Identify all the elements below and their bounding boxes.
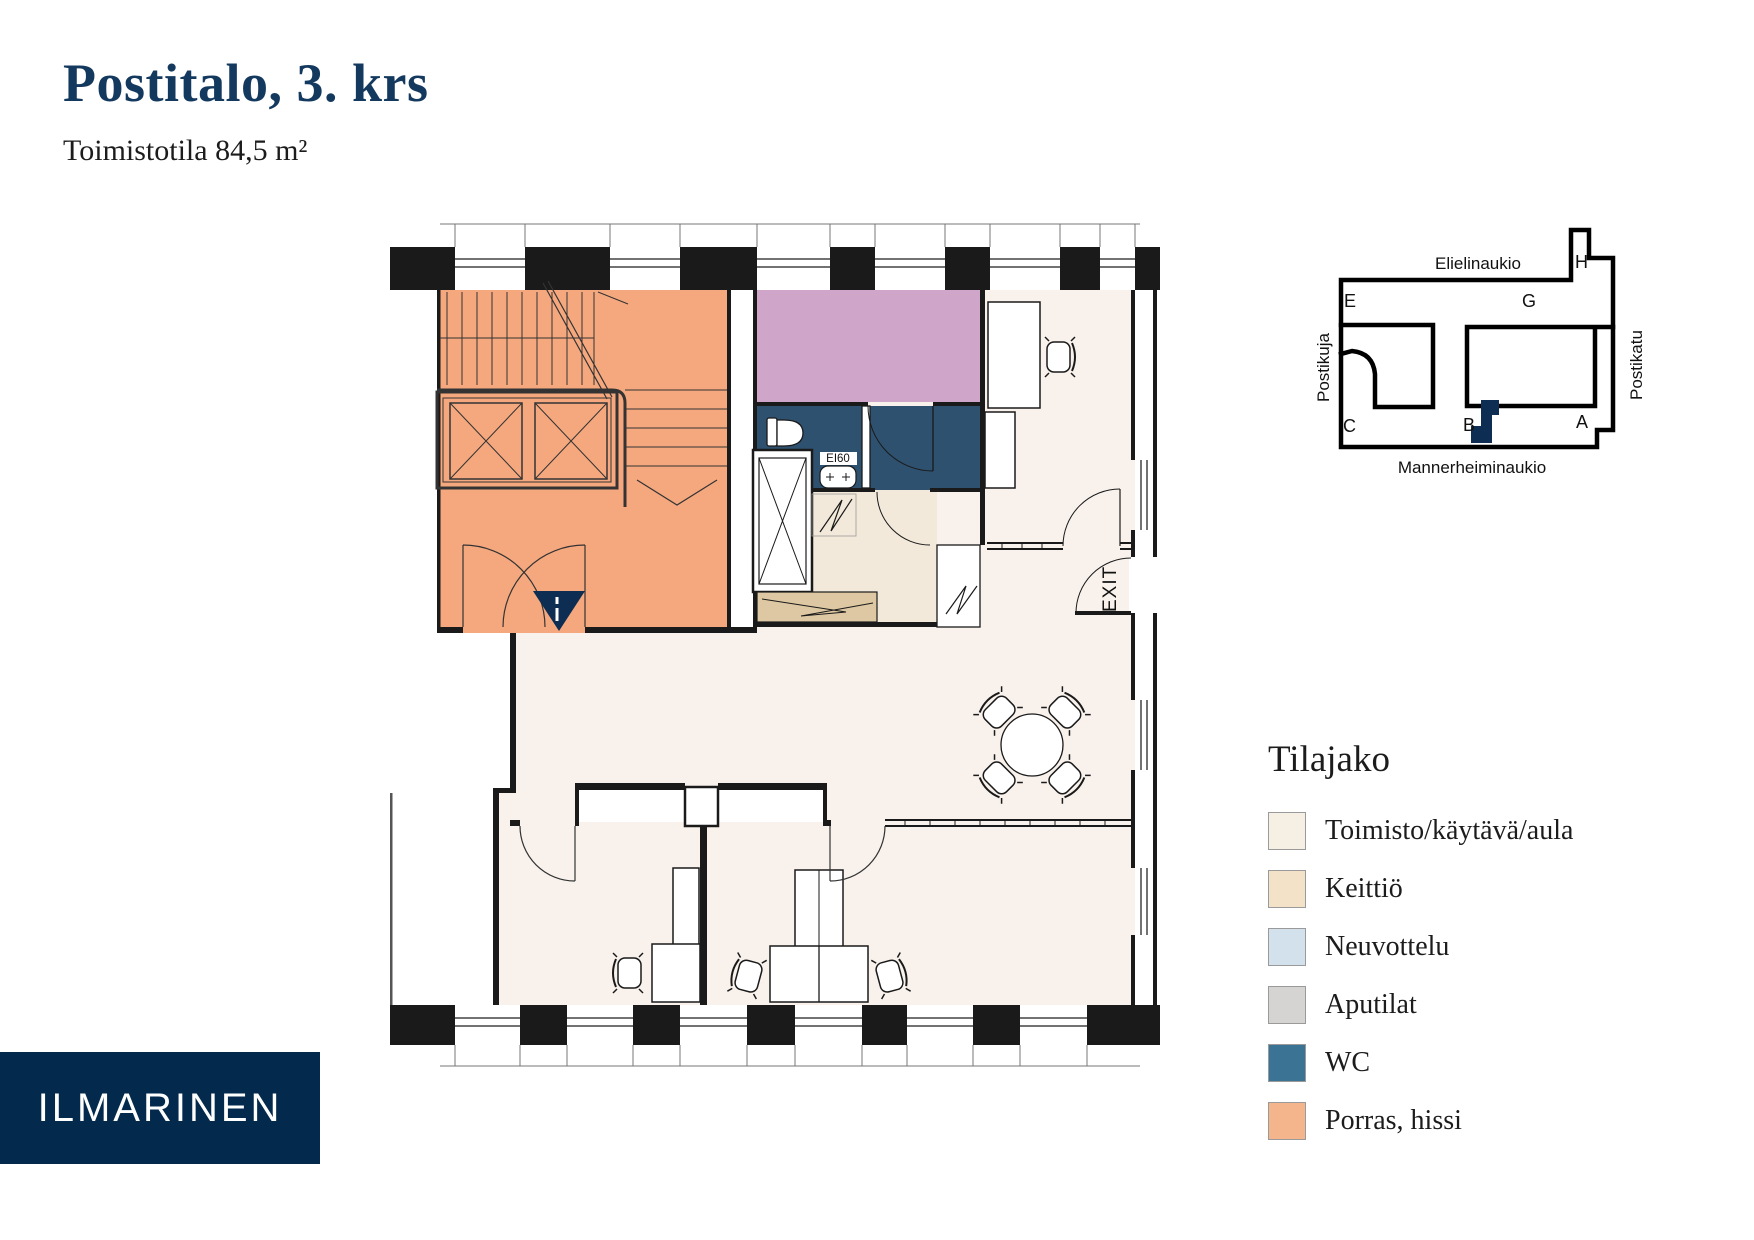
legend-swatch-toimisto [1268, 812, 1306, 850]
right-windows [1135, 460, 1153, 935]
legend-label: Aputilat [1325, 989, 1417, 1021]
entrance-letter-a: A [1576, 412, 1588, 432]
round-table-icon [1001, 714, 1063, 776]
cabinet-icon [673, 868, 699, 946]
legend-label: Neuvottelu [1325, 931, 1449, 963]
desk-icon [652, 944, 700, 1002]
purple-room-area [757, 290, 985, 402]
legend-label: Porras, hissi [1325, 1105, 1462, 1137]
top-window-sills [440, 224, 1140, 247]
legend-label: Keittiö [1325, 873, 1403, 905]
street-label-top: Elielinaukio [1435, 254, 1521, 273]
cabinet-icon [985, 412, 1015, 488]
company-logo: ILMARINEN [0, 1052, 320, 1164]
legend-swatch-wc [1268, 1044, 1306, 1082]
vestibule-pillar [685, 787, 718, 826]
street-label-bottom: Mannerheiminaukio [1398, 458, 1546, 477]
desk-icon [988, 302, 1040, 408]
legend-title: Tilajako [1268, 738, 1573, 781]
legend-label: Toimisto/käytävä/aula [1325, 815, 1573, 847]
legend-item: Keittiö [1268, 870, 1573, 908]
entrance-letter-c: C [1343, 416, 1356, 436]
entrance-letter-g: G [1522, 291, 1536, 311]
entrance-letter-h: H [1575, 252, 1588, 272]
floor-plan: EI60 EXIT [385, 205, 1165, 1070]
legend-swatch-porras [1268, 1102, 1306, 1140]
shaft-strip [731, 290, 753, 633]
kitchen-counter [757, 592, 877, 622]
entrance-letter-e: E [1344, 291, 1356, 311]
sink-icon [820, 466, 856, 488]
site-map: Elielinaukio Postikuja Postikatu Mannerh… [1310, 205, 1655, 490]
street-label-left: Postikuja [1314, 332, 1333, 402]
legend: Tilajako Toimisto/käytävä/aula Keittiö N… [1268, 738, 1573, 1160]
exit-label: EXIT [1100, 566, 1121, 612]
legend-label: WC [1325, 1047, 1370, 1079]
stair-hall-area [440, 290, 727, 633]
entrance-letter-b: B [1463, 415, 1475, 435]
page-title: Postitalo, 3. krs [63, 52, 429, 114]
company-logo-text: ILMARINEN [38, 1086, 283, 1131]
legend-item: Aputilat [1268, 986, 1573, 1024]
legend-swatch-keittio [1268, 870, 1306, 908]
legend-item: Porras, hissi [1268, 1102, 1573, 1140]
legend-swatch-neuvottelu [1268, 928, 1306, 966]
service-shaft [937, 545, 980, 627]
toilet-icon [767, 418, 777, 446]
legend-item: Toimisto/käytävä/aula [1268, 812, 1573, 850]
street-label-right: Postikatu [1627, 330, 1646, 400]
exit-opening [1129, 557, 1159, 613]
legend-item: WC [1268, 1044, 1573, 1082]
page-subtitle: Toimistotila 84,5 m² [63, 134, 307, 168]
legend-swatch-aputilat [1268, 986, 1306, 1024]
toilet-bowl [777, 420, 803, 446]
legend-item: Neuvottelu [1268, 928, 1573, 966]
bottom-window-sills [440, 1045, 1140, 1066]
bottom-wall [390, 1005, 1160, 1045]
fire-rating-label: EI60 [826, 453, 850, 465]
top-wall [390, 247, 1160, 290]
fire-elevator-icon [753, 450, 812, 592]
